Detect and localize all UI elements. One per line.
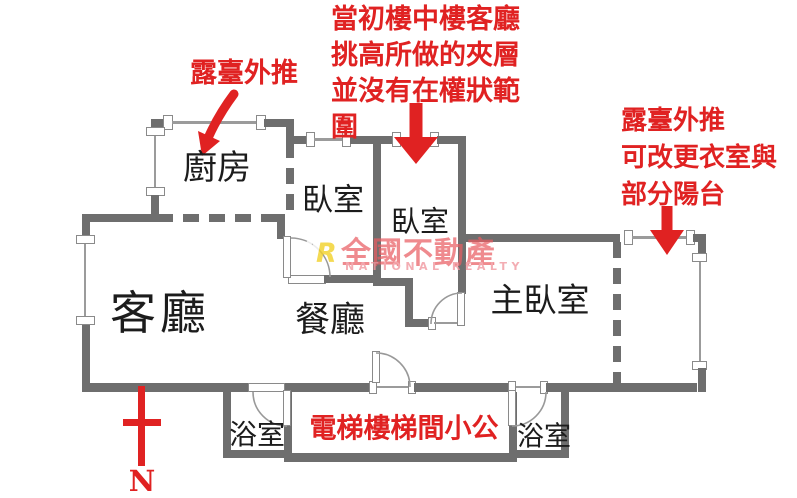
annotation-line: 當初樓中樓客廳 xyxy=(331,2,520,38)
room-label-dining: 餐廳 xyxy=(295,304,365,339)
wall-segment xyxy=(82,383,372,392)
dashed-wall xyxy=(286,142,294,216)
room-label-bath-left: 浴室 xyxy=(229,421,285,449)
room-label-living: 客廳 xyxy=(110,290,210,336)
compass-cross-vertical xyxy=(138,386,145,466)
room-label-bath-right: 浴室 xyxy=(517,424,571,451)
wall-segment xyxy=(284,453,517,462)
door-leaf xyxy=(457,292,465,326)
annotation-mezzanine: 當初樓中樓客廳 挑高所做的夾層 並沒有在權狀範 圍 xyxy=(331,2,520,146)
door-sill xyxy=(248,383,285,392)
dashed-wall xyxy=(157,214,286,222)
room-label-master: 主臥室 xyxy=(491,284,590,317)
room-label-kitchen: 廚房 xyxy=(183,151,251,185)
logo-letter: R xyxy=(316,238,337,269)
annotation-terrace-right: 露臺外推 可改更衣室與 部分陽台 xyxy=(621,103,777,214)
wall-segment xyxy=(82,325,90,392)
wall-segment xyxy=(223,450,292,458)
wall-segment xyxy=(82,214,159,222)
annotation-line: 圍 xyxy=(331,110,520,146)
annotation-terrace-left: 露臺外推 xyxy=(190,60,298,87)
watermark-brand-en: NATIONAL REALTY xyxy=(345,260,524,273)
window-line xyxy=(172,121,260,124)
door-threshold xyxy=(516,386,542,388)
watermark: R 全國不動產 NATIONAL REALTY xyxy=(288,226,508,278)
window-jamb xyxy=(146,127,165,136)
floorplan-canvas: 廚房 臥室 臥室 客廳 餐廳 主臥室 浴室 浴室 電梯樓梯間小公 露臺外推 當初… xyxy=(0,0,797,498)
brand-logo-icon: R xyxy=(292,229,339,276)
wall-segment xyxy=(286,119,294,144)
annotation-line: 部分陽台 xyxy=(621,177,777,214)
window-jamb xyxy=(76,235,95,244)
wall-segment xyxy=(414,383,510,392)
window-jamb xyxy=(76,316,95,325)
window-line xyxy=(84,244,86,317)
window-line xyxy=(632,236,688,239)
annotation-arrowhead xyxy=(650,230,684,255)
dashed-wall xyxy=(613,242,621,383)
wall-segment xyxy=(698,368,706,392)
annotation-line: 並沒有在權狀範 xyxy=(331,74,520,110)
door-arc xyxy=(376,353,410,387)
wall-segment xyxy=(546,383,697,392)
door-threshold xyxy=(377,386,410,388)
door-leaf xyxy=(372,351,380,383)
common-area-label: 電梯樓梯間小公 xyxy=(310,416,499,443)
room-label-bedroom1: 臥室 xyxy=(302,186,364,217)
door-leaf xyxy=(508,390,516,426)
annotation-line: 可改更衣室與 xyxy=(621,140,777,177)
annotation-arrow-curved xyxy=(209,94,234,136)
window-line xyxy=(699,256,701,366)
annotation-line: 挑高所做的夾層 xyxy=(331,38,520,74)
wall-segment xyxy=(82,214,90,237)
window-line xyxy=(154,129,156,191)
compass-north-label: N xyxy=(126,464,158,498)
window-jamb xyxy=(692,253,707,262)
compass-cross-horizontal xyxy=(123,419,161,426)
annotation-line: 露臺外推 xyxy=(621,103,777,140)
